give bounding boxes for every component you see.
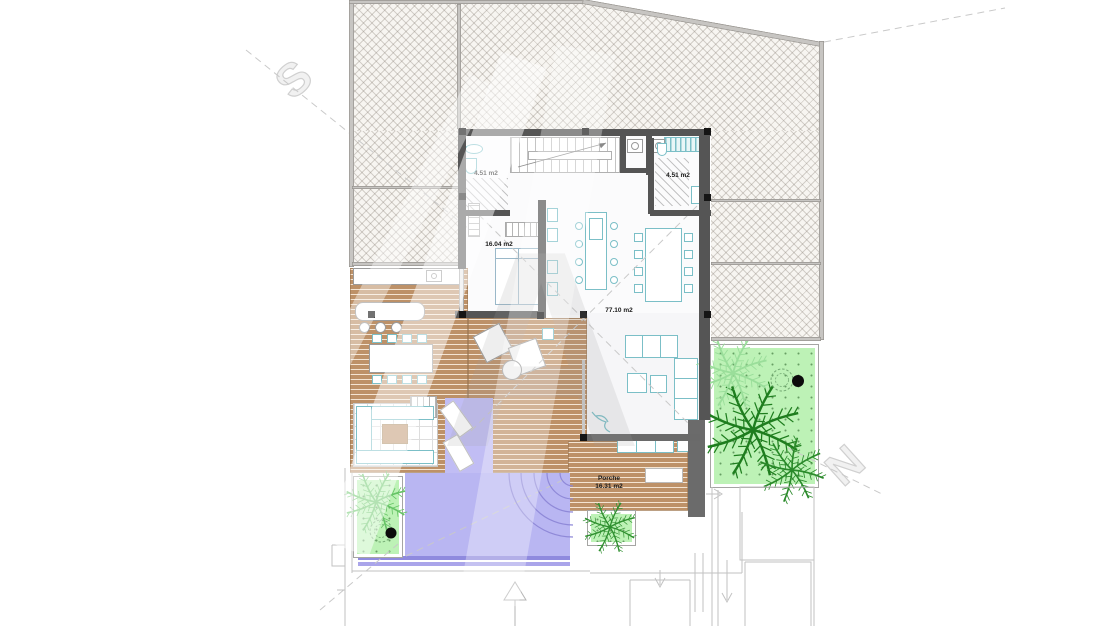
dining-chair: [684, 267, 693, 276]
outdoor-chair: [402, 334, 412, 343]
column: [582, 128, 589, 135]
outdoor-dining-table: [369, 344, 433, 373]
toilet-right-bath: [657, 143, 667, 156]
washer-door: [631, 142, 639, 150]
dining-table: [645, 228, 682, 302]
sofa-divider: [660, 335, 661, 358]
staircase-handrail: [528, 151, 612, 160]
bath-right-wall-bottom: [650, 210, 711, 216]
area-label-bath-right: 4.51 m2: [656, 172, 700, 180]
dining-chair: [684, 284, 693, 293]
shower-floor-right-bath: [655, 158, 689, 206]
hatch-divider-right-bottom: [711, 337, 821, 341]
chillout-coffee-table: [382, 424, 408, 444]
bar-stool: [375, 322, 386, 333]
outdoor-chair: [372, 375, 382, 384]
bbq-burner: [431, 273, 437, 279]
utility-wall-bottom: [620, 168, 650, 173]
porch-coffee-table: [645, 468, 683, 483]
outdoor-chair: [372, 334, 382, 343]
outdoor-chair: [402, 375, 412, 384]
column: [704, 311, 711, 318]
pool-infinity-edge-2: [358, 562, 570, 566]
up-arrow-icon: [504, 582, 526, 626]
pouf: [650, 375, 667, 393]
hatch-divider-left-1: [352, 186, 460, 189]
outdoor-chair: [417, 375, 427, 384]
outdoor-chair: [387, 375, 397, 384]
sink-left-bath: [465, 144, 483, 154]
garden-right: [711, 345, 818, 487]
watermark-letter-s: S: [264, 49, 323, 110]
bar-stool: [359, 322, 370, 333]
area-label-bath-left: 4.51 m2: [464, 170, 508, 178]
dining-chair: [684, 233, 693, 242]
garden-patch-left: [354, 477, 402, 557]
plot-wall-right: [819, 41, 824, 340]
column: [459, 128, 466, 135]
chillout-sofa-bottom: [356, 450, 434, 464]
sofa-divider: [674, 378, 698, 379]
bar-counter: [355, 302, 425, 321]
stairs-wall-right: [620, 133, 626, 173]
building-wall-right: [699, 129, 710, 420]
garden-patch-center: [588, 511, 635, 545]
hatch-divider-right-2: [711, 262, 821, 265]
hatch-divider-right-1: [711, 199, 821, 202]
floor-plan-canvas: 4.51 m2 4.51 m2 16.04 m2 77.10 m2 Porche…: [0, 0, 1110, 626]
sofa-divider: [674, 398, 698, 399]
column: [704, 194, 711, 201]
plot-wall-left: [349, 0, 354, 267]
watermark-letter-a: A: [440, 210, 642, 490]
sofa-vertical: [674, 358, 698, 420]
hatch-divider-left-inner: [457, 4, 461, 129]
bar-stool: [391, 322, 402, 333]
plot-wall-top: [349, 0, 585, 4]
hatch-area-top: [352, 0, 823, 131]
outdoor-chair: [417, 334, 427, 343]
shower-right-bath: [664, 137, 701, 152]
dining-chair: [684, 250, 693, 259]
column: [368, 311, 375, 318]
outdoor-chair: [387, 334, 397, 343]
hatch-area-right-column: [711, 131, 823, 340]
bath-right-wall-left: [648, 138, 654, 214]
column: [704, 128, 711, 135]
watermark-letter-n: N: [814, 434, 875, 496]
